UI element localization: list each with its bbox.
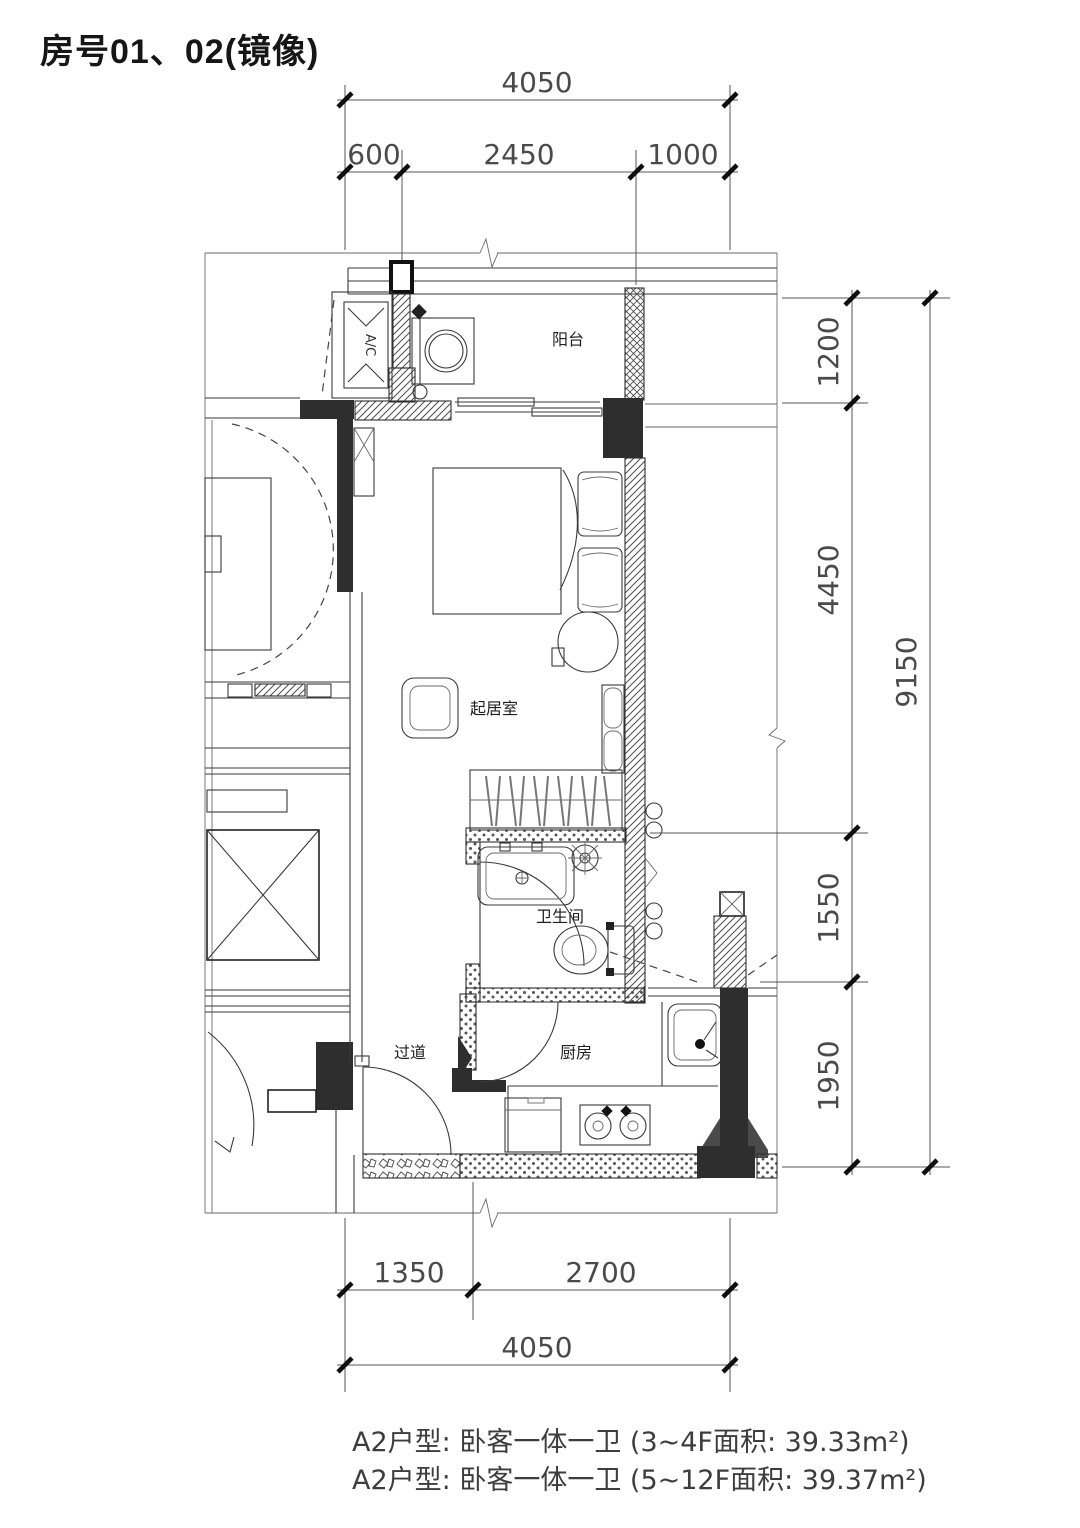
floor-plan-canvas: A/C 阳台 bbox=[0, 0, 1080, 1528]
dim-bottom-seg2: 2700 bbox=[565, 1256, 636, 1289]
dimension-top: 4050 600 2450 1000 bbox=[337, 66, 738, 285]
stove bbox=[580, 1105, 650, 1145]
kitchen-label: 厨房 bbox=[560, 1044, 592, 1062]
neighbor-door-swing bbox=[232, 424, 333, 676]
living-room-label: 起居室 bbox=[470, 700, 518, 718]
balcony: A/C 阳台 bbox=[322, 262, 777, 458]
balcony-label: 阳台 bbox=[552, 331, 584, 349]
bathroom-north-wall bbox=[466, 828, 626, 842]
bedside-shelf bbox=[578, 472, 622, 612]
shower-drain bbox=[568, 841, 602, 875]
south-wall bbox=[460, 1154, 700, 1178]
dim-right-seg3: 1550 bbox=[812, 872, 845, 943]
entry-column bbox=[720, 988, 748, 1158]
entry-door bbox=[355, 1056, 451, 1155]
dim-bottom-seg1: 1350 bbox=[373, 1256, 444, 1289]
dim-right-seg1: 1200 bbox=[812, 316, 845, 387]
column-marker bbox=[720, 892, 744, 916]
pipe-risers bbox=[646, 803, 662, 939]
balcony-east-wall bbox=[625, 288, 644, 400]
neighbor-core bbox=[205, 398, 354, 1213]
dim-right-seg4: 1950 bbox=[812, 1040, 845, 1111]
balcony-south-wall bbox=[355, 401, 451, 420]
ac-unit: A/C bbox=[322, 292, 392, 398]
west-wall bbox=[337, 418, 353, 592]
dim-right-seg2: 4450 bbox=[812, 544, 845, 615]
elevator-shaft bbox=[207, 830, 319, 960]
sofa bbox=[602, 685, 624, 773]
bathroom-south-wall bbox=[466, 988, 644, 1002]
east-wall bbox=[625, 458, 645, 1003]
kitchen-sink bbox=[668, 1004, 722, 1066]
wall-column bbox=[300, 400, 354, 419]
wall-pier bbox=[391, 262, 412, 292]
note-line-1: A2户型: 卧客一体一卫 (3~4F面积: 39.33m²) bbox=[352, 1424, 927, 1462]
toilet bbox=[554, 922, 634, 976]
dimension-right: 1200 4450 1550 1950 9150 bbox=[650, 290, 950, 1175]
dimension-bottom: 1350 2700 4050 bbox=[337, 1182, 738, 1392]
dim-top-overall: 4050 bbox=[501, 66, 572, 99]
dim-top-seg3: 1000 bbox=[647, 138, 718, 171]
counter-edge bbox=[508, 1002, 718, 1152]
living-room: 起居室 bbox=[337, 418, 645, 1062]
wall-column bbox=[603, 398, 643, 458]
side-table bbox=[558, 612, 618, 672]
bathroom-sink bbox=[478, 843, 574, 905]
ac-label: A/C bbox=[362, 334, 377, 356]
dim-top-seg1: 600 bbox=[347, 138, 400, 171]
vent-chevron bbox=[645, 858, 657, 888]
washing-machine bbox=[411, 304, 474, 399]
dim-bottom-overall: 4050 bbox=[501, 1331, 572, 1364]
drawing-boundary bbox=[205, 239, 785, 1227]
chair bbox=[402, 678, 458, 738]
unit-notes: A2户型: 卧客一体一卫 (3~4F面积: 39.33m²) A2户型: 卧客一… bbox=[352, 1424, 927, 1500]
cabinet bbox=[505, 1098, 561, 1152]
corridor: 过道 bbox=[355, 1044, 451, 1155]
floor-plan-page: 房号01、02(镜像) bbox=[0, 0, 1080, 1528]
corridor-label: 过道 bbox=[394, 1044, 426, 1062]
neighbor-door-arc bbox=[208, 1032, 254, 1146]
neighbor-furniture bbox=[205, 478, 271, 650]
bathroom-label: 卫生间 bbox=[536, 908, 584, 926]
bed bbox=[433, 468, 577, 614]
south-wall-rubble bbox=[363, 1154, 460, 1178]
kitchen: 厨房 bbox=[452, 994, 722, 1152]
sliding-window bbox=[455, 398, 602, 416]
dim-top-seg2: 2450 bbox=[483, 138, 554, 171]
wall-column bbox=[316, 1042, 353, 1110]
note-line-2: A2户型: 卧客一体一卫 (5~12F面积: 39.37m²) bbox=[352, 1462, 927, 1500]
kitchen-door bbox=[478, 1002, 558, 1082]
dim-right-overall: 9150 bbox=[890, 636, 923, 707]
wardrobe bbox=[470, 770, 622, 830]
duct-shaft bbox=[354, 428, 374, 496]
